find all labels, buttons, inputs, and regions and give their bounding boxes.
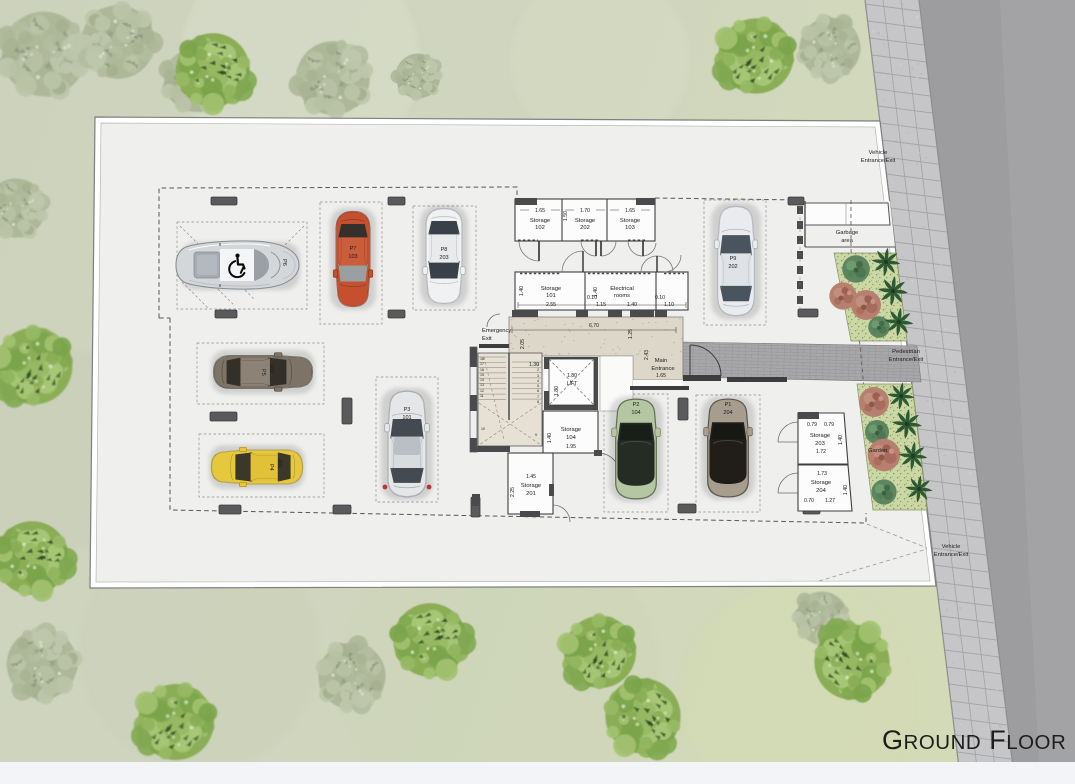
svg-text:7: 7	[537, 395, 539, 399]
svg-text:1.10: 1.10	[664, 302, 674, 308]
svg-text:104: 104	[566, 435, 576, 441]
svg-text:1.45: 1.45	[526, 474, 536, 480]
svg-text:1.50: 1.50	[563, 211, 569, 221]
svg-text:Storage: Storage	[811, 480, 831, 486]
svg-text:1.40: 1.40	[547, 433, 553, 443]
svg-text:LIFT: LIFT	[567, 381, 578, 387]
svg-text:Entrance: Entrance	[651, 366, 674, 372]
svg-text:Storage: Storage	[530, 218, 550, 224]
svg-text:18: 18	[480, 357, 484, 361]
svg-text:1.30: 1.30	[529, 362, 539, 368]
svg-text:Garden: Garden	[868, 448, 887, 454]
svg-text:103: 103	[348, 254, 357, 260]
svg-text:1.40: 1.40	[627, 302, 637, 308]
svg-text:202: 202	[580, 225, 590, 231]
svg-text:1.40: 1.40	[519, 286, 525, 296]
svg-text:5: 5	[537, 384, 539, 388]
svg-text:1.70: 1.70	[580, 208, 590, 214]
svg-text:1.95: 1.95	[566, 444, 576, 450]
svg-text:Storage: Storage	[575, 218, 595, 224]
svg-text:Vehicle: Vehicle	[869, 150, 888, 156]
svg-text:11: 11	[480, 394, 484, 398]
svg-text:area: area	[841, 238, 853, 244]
svg-text:6: 6	[537, 389, 539, 393]
svg-text:102: 102	[535, 225, 545, 231]
svg-text:15: 15	[480, 373, 484, 377]
svg-text:1.80: 1.80	[554, 386, 560, 396]
svg-text:16: 16	[480, 368, 484, 372]
svg-text:6.70: 6.70	[589, 323, 599, 329]
svg-text:14: 14	[480, 378, 484, 382]
svg-text:rooms: rooms	[614, 293, 630, 299]
svg-text:12: 12	[480, 389, 484, 393]
svg-text:3: 3	[537, 374, 539, 378]
svg-text:204: 204	[723, 410, 732, 416]
svg-text:2.25: 2.25	[510, 487, 516, 497]
svg-text:201: 201	[276, 459, 282, 468]
svg-text:204: 204	[816, 488, 826, 494]
svg-text:2: 2	[537, 368, 539, 372]
svg-text:Storage: Storage	[521, 483, 541, 489]
svg-text:202: 202	[728, 264, 737, 270]
svg-text:P7: P7	[350, 246, 357, 252]
svg-text:13: 13	[480, 383, 484, 387]
svg-text:0.70: 0.70	[804, 498, 814, 504]
svg-text:0.79: 0.79	[807, 422, 817, 428]
svg-text:201: 201	[526, 491, 536, 497]
svg-text:P6: P6	[281, 259, 287, 266]
svg-text:1.40: 1.40	[838, 435, 844, 445]
svg-text:Storage: Storage	[541, 286, 561, 292]
svg-text:203: 203	[439, 255, 448, 261]
svg-text:1.40: 1.40	[843, 485, 849, 495]
svg-text:2.05: 2.05	[520, 339, 526, 349]
svg-text:P5: P5	[260, 369, 266, 376]
svg-text:P3: P3	[404, 407, 411, 413]
svg-text:1.73: 1.73	[817, 471, 827, 477]
svg-text:17: 17	[480, 362, 484, 366]
svg-text:P8: P8	[441, 247, 448, 253]
svg-text:102: 102	[268, 364, 274, 373]
svg-text:101: 101	[546, 293, 556, 299]
svg-text:Storage: Storage	[810, 433, 830, 439]
svg-text:P4: P4	[268, 464, 274, 471]
svg-text:1.65: 1.65	[656, 373, 666, 379]
svg-text:1.80: 1.80	[567, 373, 577, 379]
svg-text:2.43: 2.43	[644, 350, 650, 360]
svg-text:103: 103	[625, 225, 635, 231]
svg-text:P2: P2	[633, 402, 640, 408]
svg-text:Emergency: Emergency	[482, 328, 511, 334]
svg-text:1.15: 1.15	[596, 302, 606, 308]
svg-text:Vehicle: Vehicle	[942, 544, 961, 550]
svg-text:Storage: Storage	[561, 427, 581, 433]
svg-text:0.79: 0.79	[824, 422, 834, 428]
svg-text:Exit: Exit	[482, 336, 492, 342]
svg-text:Garbage: Garbage	[836, 230, 859, 236]
svg-text:Main: Main	[655, 358, 668, 364]
svg-text:Entrance/Exit: Entrance/Exit	[889, 357, 924, 363]
svg-text:1.27: 1.27	[825, 498, 835, 504]
svg-text:P1: P1	[725, 402, 732, 408]
svg-text:101: 101	[402, 415, 411, 421]
svg-text:203: 203	[815, 441, 825, 447]
svg-text:10: 10	[481, 427, 485, 431]
svg-text:Pedestrian: Pedestrian	[892, 349, 920, 355]
svg-text:P9: P9	[730, 256, 737, 262]
svg-text:Storage: Storage	[620, 218, 640, 224]
svg-text:Electrical: Electrical	[610, 286, 634, 292]
svg-text:1.40: 1.40	[593, 287, 599, 297]
svg-text:1.65: 1.65	[535, 208, 545, 214]
svg-text:1.65: 1.65	[625, 208, 635, 214]
svg-text:8: 8	[537, 400, 539, 404]
svg-text:4: 4	[537, 379, 539, 383]
svg-text:1.25: 1.25	[628, 329, 634, 339]
svg-text:1.72: 1.72	[816, 449, 826, 455]
svg-text:Entrance/Exit: Entrance/Exit	[934, 552, 969, 558]
svg-text:104: 104	[631, 410, 640, 416]
svg-text:9: 9	[535, 433, 537, 437]
svg-text:Entrance/Exit: Entrance/Exit	[861, 158, 896, 164]
svg-text:0.10: 0.10	[655, 295, 665, 301]
svg-text:2.55: 2.55	[546, 302, 556, 308]
